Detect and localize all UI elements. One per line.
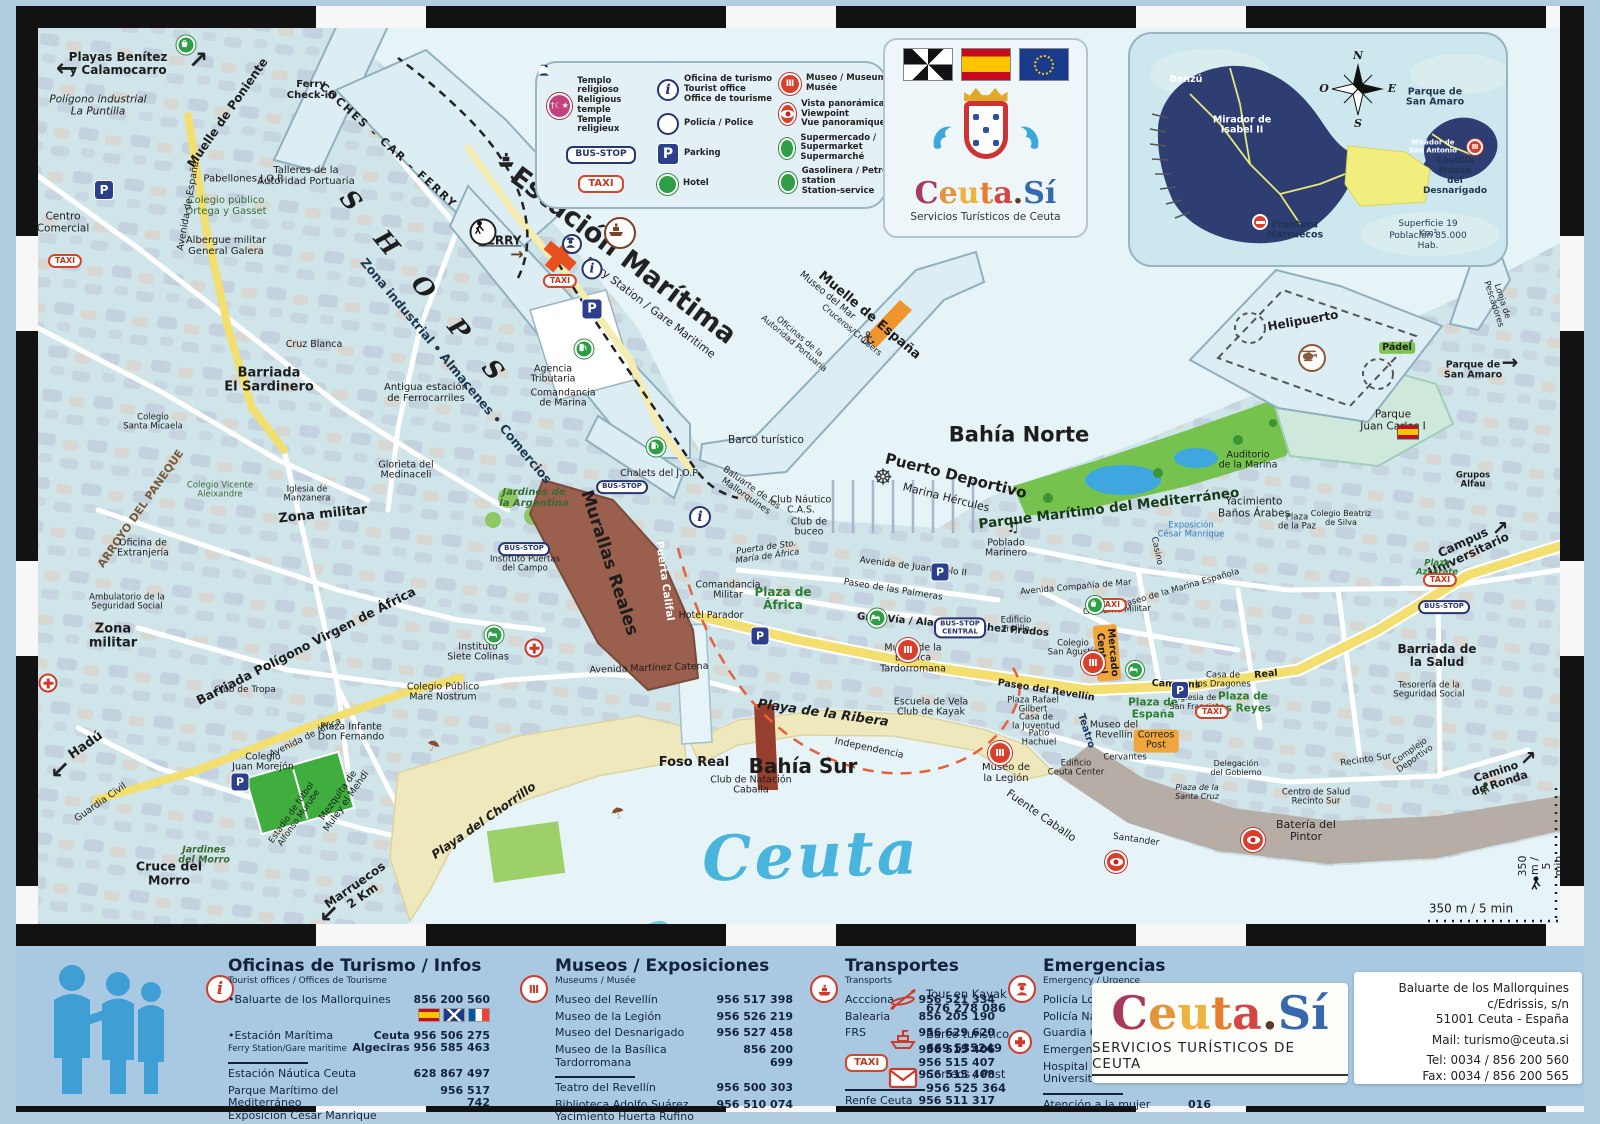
shield-icon xyxy=(964,101,1008,159)
inset-peninsula-east xyxy=(1424,118,1497,180)
parking-glyph: P xyxy=(1176,684,1184,697)
bus-stop-icon: BUS-STOP xyxy=(566,146,635,164)
info-icon: i xyxy=(582,259,603,280)
parking-glyph: P xyxy=(236,776,244,789)
museum-row-phone: 956 500 303 xyxy=(716,1082,793,1095)
kayak-label: Tour en Kayak xyxy=(926,987,1007,1001)
police-icon xyxy=(657,113,679,135)
tourism-row-sublabel: Ferry Station/Gare maritime xyxy=(228,1044,347,1054)
museum-row: Teatro del Revellín 956 500 303 xyxy=(555,1082,793,1095)
logo-letter: a xyxy=(1232,986,1262,1040)
spain-flag xyxy=(961,48,1011,81)
museum-row-phone: 856 200 699 xyxy=(725,1044,793,1069)
hotel-icon xyxy=(485,626,504,645)
address-line: Baluarte de los Mallorquines xyxy=(1367,981,1569,997)
tourism-phone-algeciras: Algeciras 956 585 463 xyxy=(352,1041,490,1054)
museum-icon: Ⅲ xyxy=(1081,651,1105,675)
legend-police-row: Policía / Police xyxy=(657,113,777,135)
tourist-office-icon: i xyxy=(657,79,679,101)
museum-row-label: Biblioteca Adolfo Suárez Yacimiento Huer… xyxy=(555,1099,694,1124)
transport-title: Transportes xyxy=(845,958,995,975)
tourism-row-phone: 856 200 560 xyxy=(413,994,490,1007)
logo-letter: e xyxy=(1148,986,1177,1040)
logo-letter: S xyxy=(1278,986,1311,1040)
people-silhouettes xyxy=(30,962,180,1100)
dolphin-icon xyxy=(929,117,959,157)
address-tel: Tel: 0034 / 856 200 560 xyxy=(1367,1053,1569,1069)
parking-icon: P xyxy=(231,773,250,792)
legend-museum-label: Museo / Museum Musée xyxy=(806,74,886,94)
transport-subtitle: Transports xyxy=(845,976,995,986)
museums-column: Museos / Exposiciones Museums / Musée Mu… xyxy=(555,958,793,1124)
bus-stop-sign: BUS-STOP xyxy=(1418,600,1470,614)
ceuta-flag xyxy=(903,48,953,81)
museum-row: Museo del Revellín 956 517 398 xyxy=(555,994,793,1007)
tourism-title: Oficinas de Turismo / Infos xyxy=(228,958,490,975)
frame-left xyxy=(16,6,38,946)
museum-row-label: Museo del Desnarigado xyxy=(555,1027,684,1040)
logo-subtitle: Servicios Turísticos de Ceuta xyxy=(910,211,1060,223)
museum-glyph: Ⅲ xyxy=(1088,658,1097,669)
address-mail: Mail: turismo@ceuta.si xyxy=(1367,1033,1569,1049)
inset-city-area xyxy=(1345,146,1430,206)
compass-rose xyxy=(1332,63,1384,115)
legend-hotel-label: Hotel xyxy=(683,179,709,189)
address-line: 51001 Ceuta - España xyxy=(1367,1012,1569,1028)
bus-stop-sign: BUS-STOP xyxy=(498,542,550,556)
address-fax: Fax: 0034 / 856 200 565 xyxy=(1367,1069,1569,1085)
bus-stop-sign: BUS-STOP xyxy=(596,480,648,494)
logo-letter: t xyxy=(1211,986,1232,1040)
temple-icon: †☾★ xyxy=(547,93,572,119)
map-legend: †☾★ Templo religioso Religious temple Te… xyxy=(535,61,887,209)
tourism-phone-ceuta: Ceuta 956 506 275 xyxy=(374,1029,490,1042)
address-box: Baluarte de los Mallorquines c/Edrissis,… xyxy=(1354,972,1582,1084)
frame-top xyxy=(16,6,1584,28)
kayak-phone: 676 278 086 xyxy=(926,1001,1006,1015)
info-icon: i xyxy=(689,506,711,528)
tourism-row-phone: 628 867 497 xyxy=(413,1068,490,1081)
uk-flag-icon xyxy=(443,1008,465,1022)
logo-letter: t xyxy=(979,176,993,211)
dolphin-icon xyxy=(1013,117,1043,157)
museum-row: Museo del Desnarigado 956 527 458 xyxy=(555,1027,793,1040)
emergency-row: Atención a la mujer 016 xyxy=(1043,1099,1211,1112)
legend-info-row: i Oficina de turismo Tourist office Offi… xyxy=(657,75,777,104)
museum-icon: Ⅲ xyxy=(988,741,1012,765)
inset-overview-map: N O E S Ⅲ Benzú Mirador de Isabel II Par… xyxy=(1128,32,1508,267)
kayak-icon xyxy=(888,987,918,1011)
logo-letter: . xyxy=(1013,176,1023,211)
taxi-label: TAXI xyxy=(550,277,570,285)
logo-letter: a xyxy=(993,176,1012,211)
frame-right xyxy=(1560,6,1584,946)
divider xyxy=(555,1076,635,1078)
boat-phone: 669 535249 xyxy=(926,1041,1002,1055)
parking-glyph: P xyxy=(936,566,944,579)
post-label: Correos / Post xyxy=(926,1067,1005,1081)
tourism-row: •Estación MarítimaFerry Station/Gare mar… xyxy=(228,1030,490,1055)
museum-glyph: Ⅲ xyxy=(903,645,912,656)
legend-column-1: †☾★ Templo religioso Religious temple Te… xyxy=(547,71,655,199)
museum-row: Biblioteca Adolfo Suárez Yacimiento Huer… xyxy=(555,1099,793,1124)
address-line: c/Edrissis, s/n xyxy=(1367,997,1569,1013)
red-cross-icon xyxy=(39,674,58,693)
tourism-row-phone: 956 517 742 xyxy=(414,1085,490,1123)
viewpoint-icon xyxy=(1241,828,1265,852)
tourism-row-label: Estación Náutica Ceuta xyxy=(228,1068,356,1081)
helicopter-icon xyxy=(1298,344,1326,372)
info-glyph: i xyxy=(217,979,223,999)
spain-flag-icon xyxy=(418,1008,440,1022)
emergency-row-phone: 016 xyxy=(1188,1099,1211,1112)
police-icon xyxy=(562,234,582,254)
flags-panel: Ceuta.Sí Servicios Turísticos de Ceuta xyxy=(883,38,1088,238)
ceuta-si-logo: Ceuta.Sí xyxy=(1111,990,1328,1036)
logo-letter: . xyxy=(1262,986,1278,1040)
petrol-station-icon xyxy=(575,340,594,359)
museum-row: Museo de la Basílica Tardorromana 856 20… xyxy=(555,1044,793,1069)
taxi-sign: TAXI xyxy=(48,254,82,268)
legend-temple-label: Templo religioso Religious temple Temple… xyxy=(577,77,655,136)
petrol-station-icon xyxy=(779,172,797,193)
ceuta-si-logo: Ceuta.Sí xyxy=(915,179,1057,209)
legend-column-2: i Oficina de turismo Tourist office Offi… xyxy=(657,71,777,199)
bus-stop-label: BUS-STOP xyxy=(504,545,544,553)
kayak-service: Tour en Kayak676 278 086 xyxy=(888,987,1009,1016)
logo-letter: e xyxy=(939,176,958,211)
jardines-morro-green xyxy=(487,821,566,883)
parking-icon: P xyxy=(657,143,679,165)
emergency-title: Emergencias xyxy=(1043,958,1211,975)
info-glyph: i xyxy=(665,82,670,98)
transport-row-label: FRS xyxy=(845,1027,866,1040)
emergency-police-icon xyxy=(1008,975,1036,1003)
hotel-icon xyxy=(1126,661,1144,679)
envelope-icon xyxy=(888,1067,918,1089)
tourism-row-label: •Baluarte de los Mallorquines xyxy=(228,994,391,1007)
transport-row-label: Accciona xyxy=(845,994,894,1007)
taxi-label: TAXI xyxy=(1202,708,1222,716)
museums-subtitle: Museums / Musée xyxy=(555,976,793,986)
museums-title: Museos / Exposiciones xyxy=(555,958,793,975)
red-cross-icon xyxy=(525,639,544,658)
legend-taxi-row: TAXI xyxy=(547,175,655,193)
museum-row-label: Museo de la Basílica Tardorromana xyxy=(555,1044,725,1069)
divider xyxy=(1043,1093,1123,1095)
info-glyph: i xyxy=(590,262,595,277)
info-glyph: i xyxy=(697,509,702,525)
museum-glyph: Ⅲ xyxy=(995,748,1004,759)
parking-glyph: P xyxy=(587,302,597,317)
viewpoint-icon xyxy=(1105,851,1127,873)
tourism-column: Oficinas de Turismo / Infos Tourist offi… xyxy=(228,958,490,1123)
tourism-row: Estación Náutica Ceuta 628 867 497 xyxy=(228,1068,490,1081)
boat-service: Barco turístico669 535249 xyxy=(888,1027,1009,1056)
ferry-ship-icon xyxy=(604,217,636,249)
language-flags xyxy=(228,1007,490,1026)
tour-boat-icon xyxy=(888,1027,918,1051)
taxi-sign: TAXI xyxy=(1195,705,1229,719)
parking-icon: P xyxy=(1171,681,1189,699)
tourism-row: Parque Marítimo del Mediterráneo Exposic… xyxy=(228,1085,490,1123)
no-entry-icon xyxy=(1252,214,1268,230)
legend-tourist-office-label: Oficina de turismo Tourist office Office… xyxy=(684,75,772,104)
museum-icon: Ⅲ xyxy=(896,638,920,662)
supermarket-icon xyxy=(779,138,795,159)
taxi-sign: TAXI xyxy=(543,274,577,288)
logo-box-subtitle: SERVICIOS TURÍSTICOS DE CEUTA xyxy=(1092,1040,1348,1076)
hotel-icon xyxy=(868,609,887,628)
museum-row-phone: 956 510 074 xyxy=(716,1099,793,1124)
petrol-station-icon xyxy=(647,438,666,457)
logo-letter: C xyxy=(1111,986,1148,1040)
crown-icon xyxy=(964,87,1008,101)
bus-stop-central-label: BUS-STOP CENTRAL xyxy=(940,620,980,635)
services-block: Tour en Kayak676 278 086 Barco turístico… xyxy=(888,987,1009,1106)
parking-glyph: P xyxy=(100,183,109,197)
logo-letter: u xyxy=(1177,986,1210,1040)
legend-bus-row: BUS-STOP xyxy=(547,146,655,164)
museum-icon: Ⅲ xyxy=(1467,139,1483,155)
parking-icon: P xyxy=(931,563,950,582)
logo-letter: C xyxy=(915,176,939,211)
museum-row-label: Museo del Revellín xyxy=(555,994,658,1007)
pedestrian-ferry-icon xyxy=(470,219,497,246)
museum-row-label: Museo de la Legión xyxy=(555,1011,661,1024)
legend-hotel-row: Hotel xyxy=(657,174,777,195)
flags-row xyxy=(903,48,1069,81)
taxi-label: TAXI xyxy=(1430,576,1450,584)
museum-row-label: Teatro del Revellín xyxy=(555,1082,656,1095)
legend-temple-row: †☾★ Templo religioso Religious temple Te… xyxy=(547,77,655,136)
legend-police-label: Policía / Police xyxy=(684,119,753,129)
logo-letter: í xyxy=(1311,986,1328,1040)
taxi-icon: TAXI xyxy=(845,1054,888,1072)
supermarket-icon xyxy=(1086,596,1104,614)
divider xyxy=(228,1062,308,1064)
parking-icon: P xyxy=(582,299,603,320)
ceuta-coat-of-arms xyxy=(911,87,1061,179)
boat-label: Barco turístico xyxy=(926,1027,1009,1041)
museum-row-phone: 956 517 398 xyxy=(716,994,793,1007)
parking-icon: P xyxy=(94,180,114,200)
taxi-label: TAXI xyxy=(55,257,75,265)
france-flag-icon xyxy=(468,1008,490,1022)
viewpoint-icon xyxy=(779,103,796,125)
parking-icon: P xyxy=(751,627,770,646)
tourism-row: •Baluarte de los Mallorquines 856 200 56… xyxy=(228,994,490,1007)
logo-letter: u xyxy=(958,176,980,211)
eu-flag xyxy=(1019,48,1069,81)
museum-row-phone: 956 527 458 xyxy=(716,1027,793,1040)
spain-flag-icon xyxy=(1397,425,1419,440)
bus-stop-label: BUS-STOP xyxy=(1424,603,1464,611)
logo-letter: í xyxy=(1045,176,1056,211)
logo-letter: S xyxy=(1023,176,1045,211)
inset-geography xyxy=(1130,34,1506,265)
taxi-sign: TAXI xyxy=(1423,573,1457,587)
tourism-row-label: •Estación Marítima xyxy=(228,1029,333,1042)
legend-parking-row: P Parking xyxy=(657,143,777,165)
parking-glyph: P xyxy=(663,146,673,162)
museum-row-phone: 956 526 219 xyxy=(716,1011,793,1024)
post-phone: 956 525 364 xyxy=(926,1081,1006,1095)
transport-row-label: Balearia xyxy=(845,1011,890,1024)
frame-bottom xyxy=(16,924,1584,946)
parking-glyph: P xyxy=(756,630,764,643)
red-cross-icon xyxy=(1008,1030,1032,1054)
emergency-row-label: Atención a la mujer xyxy=(1043,1099,1150,1112)
post-service: Correos / Post956 525 364 xyxy=(888,1067,1009,1096)
museum-icon: Ⅲ xyxy=(520,975,548,1003)
tourism-subtitle: Tourist offices / Offices de Tourisme xyxy=(228,976,490,986)
museum-row: Museo de la Legión 956 526 219 xyxy=(555,1011,793,1024)
bus-stop-central-sign: BUS-STOP CENTRAL xyxy=(934,617,986,638)
taxi-icon: TAXI xyxy=(578,175,623,193)
ceuta-si-logo-box: Ceuta.Sí SERVICIOS TURÍSTICOS DE CEUTA xyxy=(1092,983,1348,1083)
legend-parking-label: Parking xyxy=(684,149,721,159)
transport-ship-icon xyxy=(810,975,838,1003)
museum-icon: Ⅲ xyxy=(779,73,801,95)
hotel-icon xyxy=(657,174,678,195)
supermarket-icon xyxy=(177,36,196,55)
bus-stop-label: BUS-STOP xyxy=(602,483,642,491)
tourism-row-label: Parque Marítimo del Mediterráneo Exposic… xyxy=(228,1085,414,1123)
